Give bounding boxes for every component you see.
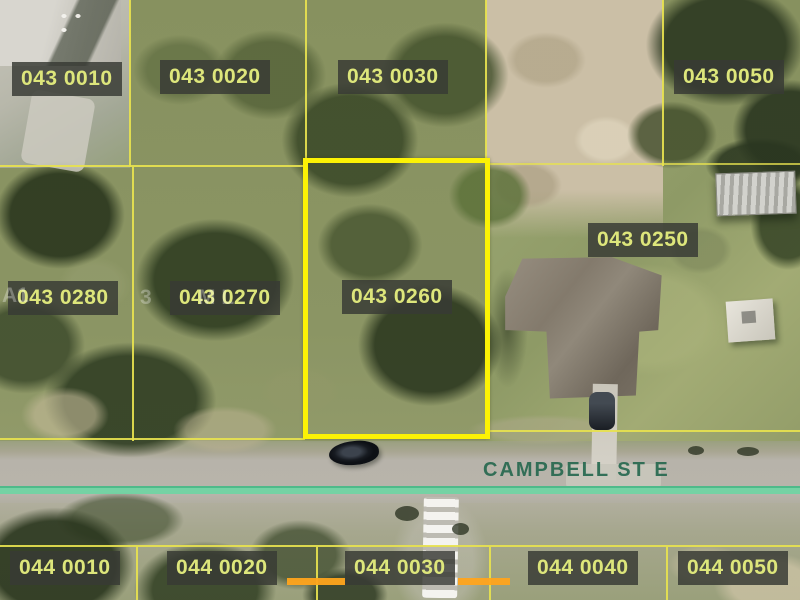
parcel-boundary-line bbox=[489, 547, 491, 600]
parcel-label-043-0250[interactable]: 043 0250 bbox=[588, 223, 698, 257]
parcel-boundary-line bbox=[488, 430, 800, 432]
parcel-label-043-0050[interactable]: 043 0050 bbox=[674, 60, 784, 94]
parcel-label-043-0020[interactable]: 043 0020 bbox=[160, 60, 270, 94]
parcel-label-043-0260-selected[interactable]: 043 0260 bbox=[342, 280, 452, 314]
parcel-boundary-line bbox=[305, 0, 307, 160]
highlight-dash bbox=[458, 578, 510, 585]
shed-roof-mark bbox=[741, 311, 756, 324]
building-roof-northwest bbox=[0, 0, 121, 66]
car-on-driveway bbox=[589, 392, 615, 430]
watermark-fragment: M L bbox=[198, 286, 234, 310]
street-centerline bbox=[0, 486, 800, 494]
small-shed bbox=[726, 298, 776, 342]
parcel-label-044-0030[interactable]: 044 0030 bbox=[345, 551, 455, 585]
driveway-northwest bbox=[20, 89, 96, 173]
parcel-boundary-line bbox=[136, 547, 138, 600]
road-debris bbox=[395, 506, 419, 521]
parcel-boundary-line bbox=[666, 547, 668, 600]
parcel-boundary-line bbox=[662, 0, 664, 166]
watermark-fragment: A1 bbox=[2, 284, 29, 308]
parcel-label-044-0020[interactable]: 044 0020 bbox=[167, 551, 277, 585]
street-name-label: CAMPBELL ST E bbox=[483, 459, 670, 482]
road-debris bbox=[452, 523, 469, 535]
parcel-label-043-0030[interactable]: 043 0030 bbox=[338, 60, 448, 94]
parcel-label-043-0010[interactable]: 043 0010 bbox=[12, 62, 122, 96]
parcel-label-044-0010[interactable]: 044 0010 bbox=[10, 551, 120, 585]
parcel-label-044-0050[interactable]: 044 0050 bbox=[678, 551, 788, 585]
metal-shed-roof bbox=[715, 171, 796, 217]
parcel-boundary-line bbox=[0, 545, 800, 547]
parcel-boundary-line bbox=[0, 438, 305, 440]
road-debris bbox=[688, 446, 704, 455]
highlight-dash bbox=[287, 578, 345, 585]
aerial-parcel-map: CAMPBELL ST E 043 0010 043 0020 043 0030… bbox=[0, 0, 800, 600]
parcel-boundary-line bbox=[485, 0, 487, 160]
parcel-boundary-line bbox=[129, 0, 131, 167]
parcel-label-044-0040[interactable]: 044 0040 bbox=[528, 551, 638, 585]
parcel-boundary-line bbox=[486, 163, 800, 165]
parcel-boundary-line bbox=[0, 165, 306, 167]
watermark-fragment: 3 bbox=[140, 286, 152, 310]
road-debris bbox=[737, 447, 759, 456]
parcel-boundary-line bbox=[316, 547, 318, 600]
parcel-boundary-line bbox=[132, 167, 134, 441]
